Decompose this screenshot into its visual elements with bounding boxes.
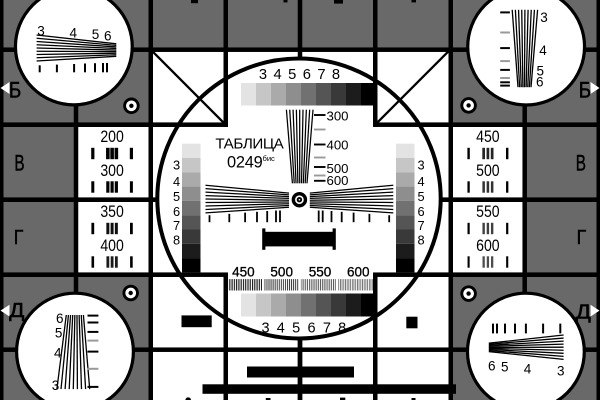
svg-text:6: 6 [56,311,64,326]
svg-text:350: 350 [100,202,124,221]
svg-text:8: 8 [417,232,424,247]
svg-text:7: 7 [317,67,325,83]
svg-text:4: 4 [70,25,78,40]
svg-text:400: 400 [327,137,349,152]
svg-text:Д: Д [576,302,592,324]
svg-text:6: 6 [104,28,112,43]
svg-text:5: 5 [292,320,300,336]
svg-text:550: 550 [309,264,332,279]
svg-text:200: 200 [100,127,124,146]
svg-text:ТАБЛИЦА: ТАБЛИЦА [215,136,284,153]
svg-text:Г: Г [14,226,24,249]
svg-text:Г: Г [577,226,587,249]
svg-text:7: 7 [173,218,180,233]
svg-text:5: 5 [55,325,63,340]
svg-text:450: 450 [232,264,255,279]
svg-text:450: 450 [476,127,500,146]
svg-text:400: 400 [100,236,124,255]
svg-text:300: 300 [327,108,349,123]
svg-text:3: 3 [259,67,267,83]
svg-text:3: 3 [261,320,269,336]
svg-text:8: 8 [332,67,340,83]
svg-text:5: 5 [417,189,424,204]
svg-text:В: В [14,150,24,175]
svg-text:4: 4 [417,174,424,189]
svg-text:6: 6 [417,204,424,219]
svg-text:5: 5 [92,27,100,42]
svg-text:4: 4 [54,346,62,361]
svg-text:Д: Д [9,300,25,322]
svg-text:4: 4 [274,67,282,83]
svg-text:3: 3 [52,378,60,393]
svg-text:6: 6 [303,67,311,83]
svg-text:300: 300 [100,161,124,180]
svg-text:4: 4 [173,174,180,189]
svg-text:5: 5 [288,67,296,83]
svg-text:3: 3 [540,10,548,25]
svg-text:600: 600 [347,264,370,279]
svg-text:Б: Б [579,78,591,103]
svg-text:7: 7 [323,320,331,336]
svg-text:3: 3 [557,364,565,379]
svg-text:5: 5 [501,360,509,375]
svg-text:600: 600 [327,173,349,188]
svg-text:6: 6 [307,320,315,336]
svg-text:Б: Б [9,78,21,103]
svg-text:4: 4 [539,43,547,58]
svg-text:6: 6 [536,74,544,89]
svg-text:8: 8 [338,320,346,336]
svg-text:500: 500 [270,264,293,279]
svg-text:3: 3 [173,157,180,172]
svg-text:8: 8 [173,232,180,247]
svg-text:7: 7 [417,218,424,233]
svg-text:В: В [576,150,586,175]
svg-text:500: 500 [476,161,500,180]
svg-text:600: 600 [476,236,500,255]
svg-text:6: 6 [488,359,496,374]
svg-text:4: 4 [277,320,285,336]
svg-text:5: 5 [173,189,180,204]
svg-text:550: 550 [476,202,500,221]
svg-text:3: 3 [37,23,45,38]
svg-text:6: 6 [173,204,180,219]
svg-text:4: 4 [524,362,532,377]
svg-text:3: 3 [417,157,424,172]
